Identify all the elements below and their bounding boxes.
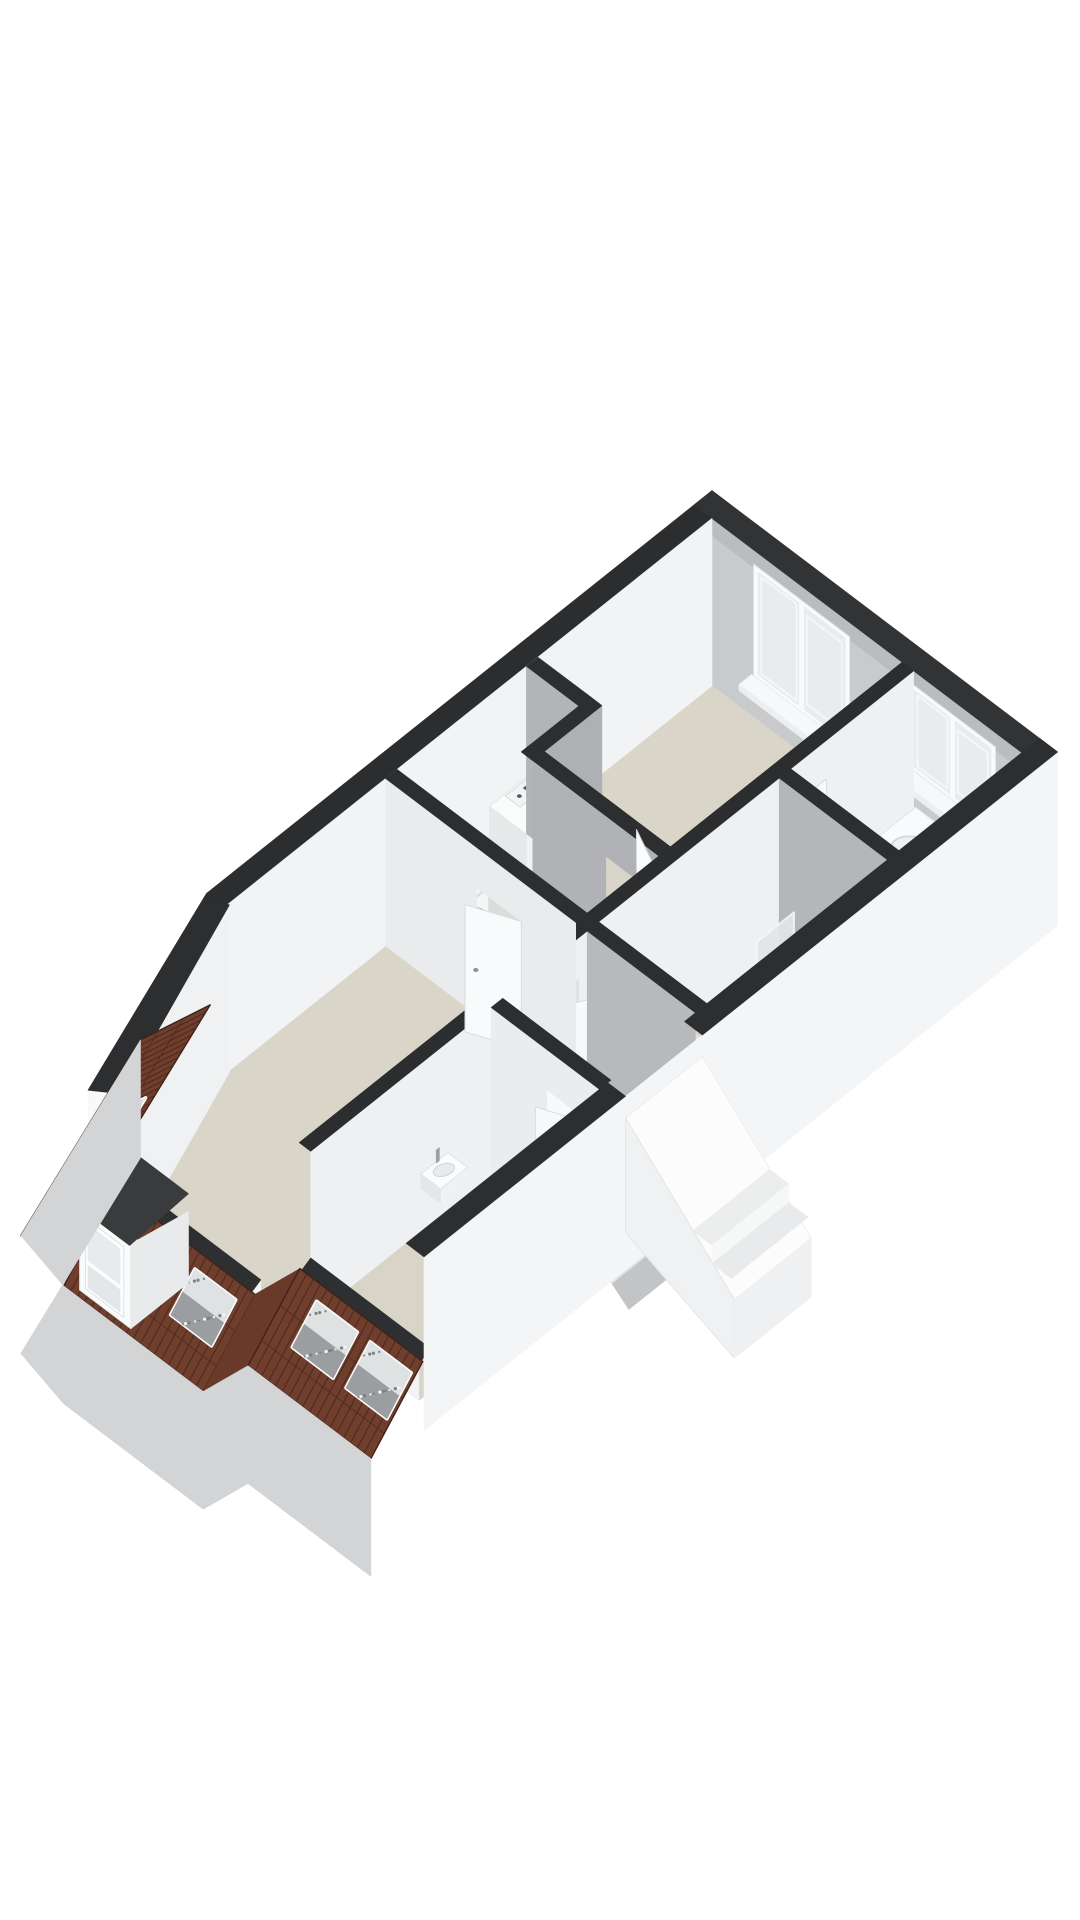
bottomroom-skylight-2-speckle [385, 1390, 387, 1392]
bottomroom-skylight-2-speckle [397, 1386, 400, 1389]
bedroom2-door-handle [473, 968, 478, 972]
bedroom2-skylight-speckle [203, 1318, 206, 1321]
bottomroom-skylight-2-speckle [372, 1352, 375, 1355]
bottomroom-skylight-2-speckle [394, 1387, 397, 1390]
bottomroom-skylight-2-speckle [363, 1394, 366, 1397]
bedroom2-skylight-speckle [218, 1314, 221, 1317]
counter-outlet-dot-2 [517, 794, 522, 798]
bedroom2-skylight-speckle [207, 1317, 210, 1320]
bedroom2-skylight-speckle [196, 1279, 199, 1282]
bottomroom-skylight-2-speckle [359, 1395, 362, 1398]
bedroom2-skylight-speckle [184, 1322, 187, 1325]
bedroom2-skylight-speckle [198, 1319, 200, 1321]
bottomroom-skylight-1-speckle [305, 1354, 308, 1357]
bottomroom-skylight-2-speckle [378, 1351, 380, 1353]
bottomroom-skylight-1-speckle [309, 1353, 312, 1356]
bedroom2-skylight-speckle [209, 1317, 211, 1319]
bottomroom-skylight-1-speckle [335, 1348, 337, 1350]
bottomroom-skylight-1-speckle [331, 1349, 333, 1351]
bedroom1-window-mullion [799, 603, 803, 709]
bottomroom-skylight-1-speckle [340, 1346, 343, 1349]
bottomroom-skylight-1-speckle [328, 1349, 331, 1352]
bottomroom-skylight-1-speckle [318, 1311, 321, 1314]
bottomroom-skylight-1-speckle [325, 1350, 328, 1353]
bottomroom-skylight-2-speckle [388, 1389, 390, 1391]
bottomroom-skylight-2-speckle [378, 1391, 381, 1394]
bedroom2-skylight-speckle [222, 1313, 225, 1316]
bottomroom-skylight-2-speckle [369, 1393, 371, 1395]
bedroom2-skylight-speckle [193, 1279, 196, 1282]
bottomroom-skylight-1-speckle [309, 1314, 311, 1316]
bottomroom-skylight-1-speckle [344, 1346, 347, 1349]
bottomroom-skylight-2-speckle [382, 1390, 385, 1393]
bottomroom-skylight-1-speckle [319, 1352, 321, 1354]
floor-plan-page [0, 0, 1080, 1920]
floor-plan-rendering [0, 0, 1080, 1920]
bottomroom-skylight-2-speckle [368, 1352, 371, 1355]
bottomroom-skylight-2-speckle [363, 1354, 365, 1356]
wall-sink-faucet [436, 1148, 439, 1164]
bedroom2-skylight-speckle [213, 1316, 215, 1318]
bedroom2-skylight-speckle [203, 1278, 205, 1280]
bottomroom-skylight-1-speckle [314, 1312, 317, 1315]
bathroom-window-mullion [950, 717, 955, 797]
bedroom2-skylight-speckle [188, 1321, 191, 1324]
bottomroom-skylight-2-speckle [373, 1392, 375, 1394]
bottomroom-skylight-1-speckle [315, 1353, 317, 1355]
bottomroom-skylight-1-speckle [324, 1310, 326, 1312]
bedroom2-skylight-speckle [194, 1320, 196, 1322]
